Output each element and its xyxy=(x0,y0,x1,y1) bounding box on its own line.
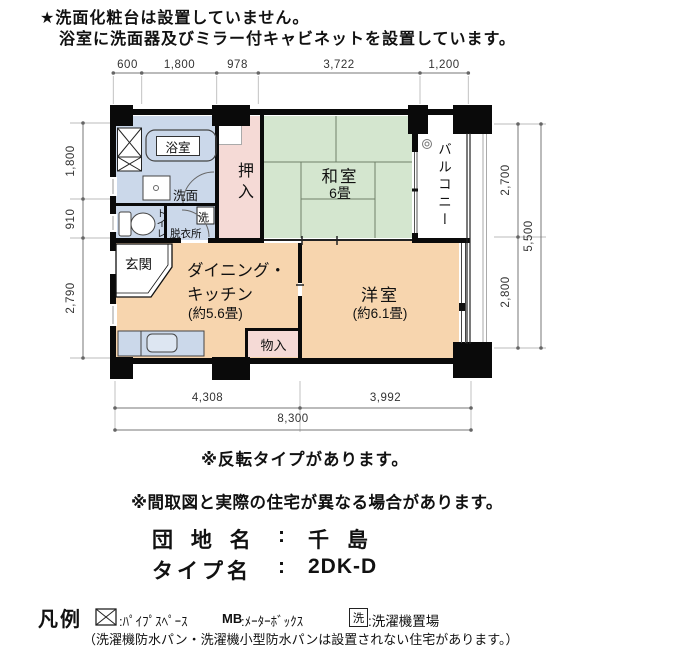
type-colon: : xyxy=(278,555,285,579)
genkan-label: 玄関 xyxy=(125,253,152,273)
dim-top-600: 600 xyxy=(113,59,142,71)
column-top-right xyxy=(408,105,428,134)
type-name-value: 2DK-D xyxy=(308,555,377,579)
wall-washitsu-right-upper xyxy=(412,109,418,152)
pipe-space-legend-icon xyxy=(95,608,117,626)
dim-top-1800: 1,800 xyxy=(142,59,217,71)
column-bottom-left xyxy=(110,357,133,379)
washbasin-label: 洗面 xyxy=(173,185,198,204)
wall-closet-left xyxy=(215,116,219,240)
floorplan-sheet: { "page": { "note1": "★洗面化粧台は設置していません。",… xyxy=(0,0,700,650)
type-name-label: タイプ名 xyxy=(152,555,252,585)
danchi-name-label: 団 地 名 xyxy=(152,524,257,554)
wall-mid-right xyxy=(208,238,264,243)
laundry-label: 洗 xyxy=(198,209,209,225)
dim-top-978: 978 xyxy=(217,59,258,71)
toilet-label: トイレ xyxy=(152,208,167,246)
entrance-door-gap xyxy=(109,251,117,274)
danchi-name-value: 千 島 xyxy=(308,524,374,554)
washitsu-window xyxy=(412,152,418,233)
dim-bottom-3992: 3,992 xyxy=(300,392,471,404)
storage-label: 物入 xyxy=(249,335,298,354)
bath-washbasin-area xyxy=(116,116,215,203)
dk-size-label: (約5.6畳) xyxy=(188,302,243,322)
wall-top xyxy=(110,109,455,115)
dim-left-910: 910 xyxy=(63,197,79,241)
legend-mb-text: :ﾒｰﾀｰﾎﾞｯｸｽ xyxy=(241,611,303,630)
legend-laundry-text: :洗濯機置場 xyxy=(368,610,439,630)
dim-left-1800: 1,800 xyxy=(63,139,79,183)
disclaimer-note: ※間取図と実際の住宅が異なる場合があります。 xyxy=(131,489,503,513)
legend-note: （洗濯機防水パン・洗濯機小型防水パンは設置されない住宅があります。） xyxy=(83,629,519,648)
dim-left-2790: 2,790 xyxy=(63,276,79,320)
outer-edge-lines xyxy=(483,134,487,342)
column-bottom-right xyxy=(453,342,492,378)
legend-title: 凡例 xyxy=(38,603,82,632)
dim-bottom-8300: 8,300 xyxy=(115,413,471,425)
dim-right-5500: 5,500 xyxy=(521,214,537,258)
washitsu-size-label: 6畳 xyxy=(294,183,386,203)
wall-storage-left xyxy=(245,331,248,357)
yoshitsu-window xyxy=(459,243,466,343)
column-top-left xyxy=(110,105,133,126)
wall-dk-yoshitsu-lower xyxy=(298,296,302,358)
column-balcony-top xyxy=(453,105,492,134)
wall-closet-right xyxy=(260,109,264,240)
yoshitsu-size-label: (約6.1畳) xyxy=(330,302,430,322)
dk-label-line1: ダイニング・ xyxy=(187,257,286,281)
dressing-label: 脱衣所 xyxy=(170,226,202,241)
bath-label: 浴室 xyxy=(156,136,200,156)
window-gap-toilet xyxy=(109,214,117,232)
legend-laundry-symbol: 洗 xyxy=(349,608,368,627)
window-gap-kitchen xyxy=(109,304,117,326)
balcony-label: バルコニー xyxy=(433,142,453,297)
dim-top-3722: 3,722 xyxy=(258,59,420,71)
dim-right-2800: 2,800 xyxy=(498,270,514,314)
wall-dk-yoshitsu-upper xyxy=(298,243,302,283)
legend-mb-symbol: MB xyxy=(222,611,242,626)
dim-bottom-4308: 4,308 xyxy=(115,392,300,404)
danchi-colon: : xyxy=(278,524,285,548)
balcony-drain-icon xyxy=(423,140,432,149)
note-bathroom-cabinet: 浴室に洗面器及びミラー付キャビネットを設置しています。 xyxy=(59,25,516,49)
reversal-note: ※反転タイプがあります。 xyxy=(201,446,409,470)
dim-right-2700: 2,700 xyxy=(498,158,514,202)
closet-label: 押入 xyxy=(231,162,255,212)
window-gap-bath xyxy=(109,177,117,196)
legend-ps-text: :ﾊﾟｲﾌﾟｽﾍﾟｰｽ xyxy=(119,611,188,630)
wall-storage-top xyxy=(245,328,300,331)
column-bottom-middle xyxy=(212,357,250,380)
wall-bottom xyxy=(110,358,460,364)
dim-top-1200: 1,200 xyxy=(420,59,468,71)
